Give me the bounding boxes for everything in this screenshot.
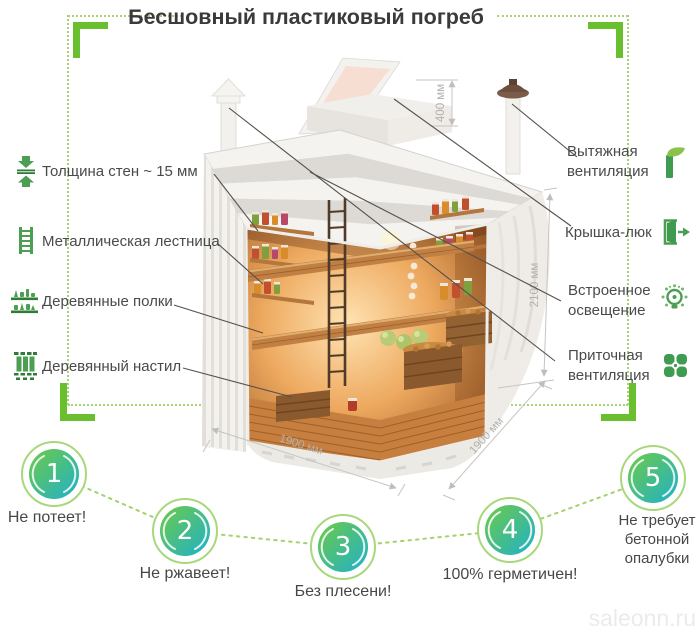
benefit-label-1: Не потеет! — [0, 509, 97, 527]
feature-supply-vent-label: Приточная вентиляция — [568, 346, 660, 386]
feature-wall-thickness-label: Толщина стен ~ 15 мм — [42, 162, 198, 182]
benefit-label-2: Не ржавеет! — [130, 565, 240, 583]
feature-light-label: Встроенное освещение — [568, 281, 660, 321]
exhaust-vent-icon — [660, 146, 686, 183]
benefit-circle-3: 3 — [310, 514, 376, 580]
benefit-label-3: Без плесени! — [288, 583, 398, 601]
watermark: saleonn.ru — [589, 605, 696, 632]
supply-vent-icon — [663, 353, 688, 383]
shelves-icon — [11, 287, 38, 319]
infographic: Бесшовный пластиковый погреб — [0, 0, 700, 640]
feature-decking-label: Деревянный настил — [42, 357, 181, 377]
feature-exhaust-vent-label: Вытяжная вентиляция — [567, 142, 659, 182]
benefit-circle-4: 4 — [477, 497, 543, 563]
page-title: Бесшовный пластиковый погреб — [128, 5, 484, 30]
benefit-circle-5: 5 — [620, 445, 686, 511]
benefit-circle-1: 1 — [21, 441, 87, 507]
light-icon — [661, 284, 688, 319]
wall-thickness-icon — [14, 155, 38, 192]
ladder-icon — [16, 227, 36, 259]
feature-ladder-label: Металлическая лестница — [42, 232, 220, 252]
feature-shelves-label: Деревянные полки — [42, 292, 173, 312]
benefit-circle-2: 2 — [152, 498, 218, 564]
benefit-label-5: Не требует бетонной опалубки — [611, 511, 700, 568]
supply-pipe — [497, 79, 529, 174]
dimension-label-collar: 400 мм — [435, 84, 447, 122]
decking-icon — [14, 352, 37, 385]
benefit-label-4: 100% герметичен! — [435, 566, 585, 584]
hatch-icon — [662, 219, 690, 250]
feature-hatch-label: Крышка-люк — [565, 223, 657, 243]
